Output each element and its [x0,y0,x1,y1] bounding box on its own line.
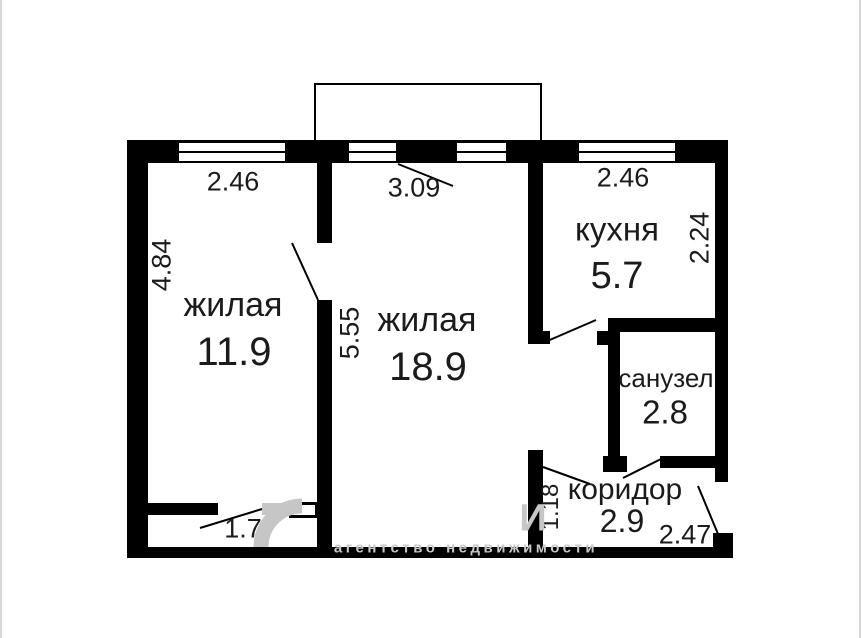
watermark-letter: И [519,498,546,541]
page-right-border [859,0,861,638]
page-left-border [0,0,2,638]
floorplan-canvas: жилая 11.9 жилая 18.9 кухня 5.7 санузел … [0,0,862,638]
watermark-logo-bar [262,503,287,515]
watermark-agency-text: агентство недвижимости [334,540,598,557]
